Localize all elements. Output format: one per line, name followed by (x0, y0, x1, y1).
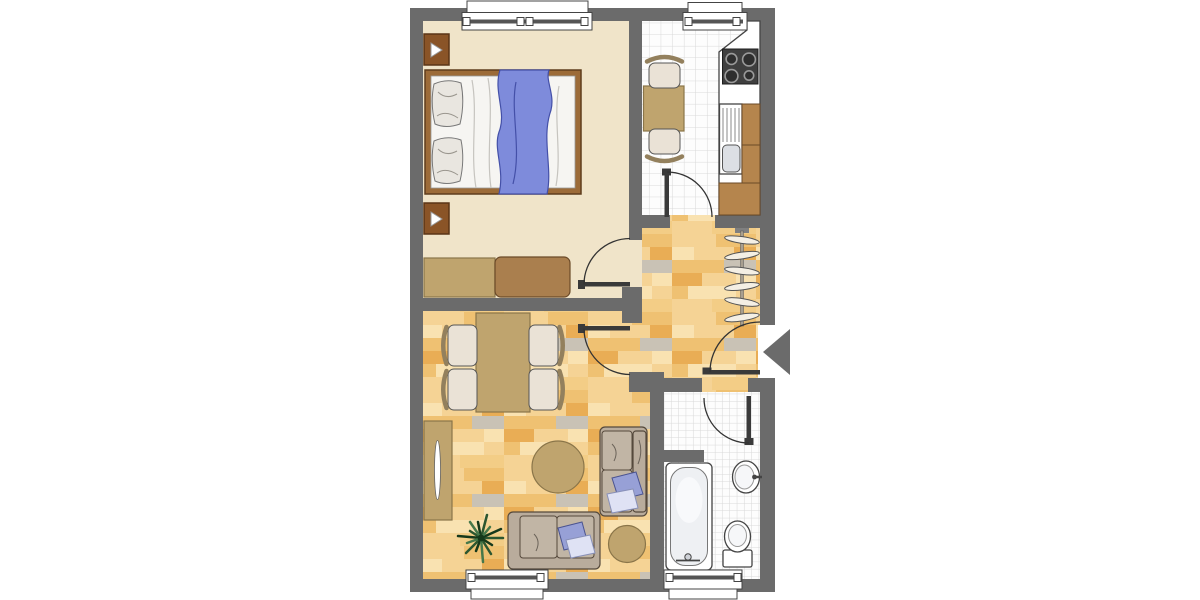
bedroom-window (462, 1, 592, 30)
bathroom-doorway (702, 378, 748, 392)
bathroom-window (664, 570, 742, 599)
kitchen-window (683, 3, 747, 31)
door-handle (745, 438, 754, 445)
kitchen-table (644, 86, 685, 131)
window-handle (685, 18, 692, 26)
window-handle (581, 18, 588, 26)
loveseat-cushion (602, 431, 632, 470)
window-handle (463, 18, 470, 26)
door-leaf (584, 326, 630, 331)
pillow (432, 138, 463, 184)
bedroom-doorway (629, 240, 642, 287)
bathtub-ledge (650, 450, 704, 462)
sofa-symbol (508, 512, 600, 569)
kitchen-cabinet (742, 145, 760, 183)
toilet-symbol (723, 521, 752, 567)
dining-chair (529, 325, 563, 366)
dresser (424, 258, 495, 297)
chair-seat (649, 63, 680, 88)
chair-seat (448, 325, 477, 366)
dining-chair (529, 369, 563, 410)
sideboard-handle (435, 441, 441, 500)
page (0, 0, 1200, 600)
window-handle (666, 574, 673, 582)
bathtub-highlight (676, 477, 703, 523)
window-sill (688, 3, 742, 14)
basin-inner (735, 465, 754, 489)
ottoman (609, 526, 646, 563)
door-leaf (584, 282, 630, 287)
dining-chair (443, 369, 477, 410)
door-leaf (747, 396, 752, 441)
plant-center (478, 535, 485, 542)
door-leaf (708, 370, 760, 375)
burner-icon (744, 71, 753, 80)
double-bed-symbol (425, 70, 581, 194)
sink-symbol (720, 104, 743, 174)
chair-seat (529, 325, 558, 366)
pillow (432, 81, 463, 127)
window-glass-bar (668, 576, 738, 580)
blanket (497, 70, 552, 194)
round-rug (532, 441, 584, 493)
door-post (622, 287, 642, 323)
window-handle (517, 18, 524, 26)
window-handle (468, 574, 475, 582)
living-room-window (466, 570, 548, 599)
chair-seat (448, 369, 477, 410)
loveseat-symbol (600, 427, 647, 516)
window-handle (733, 18, 740, 26)
burner-icon (726, 54, 737, 65)
toilet-bowl-inner (729, 525, 747, 547)
burner-icon (725, 70, 738, 83)
throw-pillow-light (607, 489, 638, 513)
kitchen-doorway (670, 215, 715, 228)
low-chest (495, 257, 570, 297)
window-sill (471, 589, 543, 599)
wall-arrow-marker (424, 34, 449, 65)
stove-symbol (723, 49, 759, 84)
drain-icon (685, 554, 691, 560)
bathtub-symbol (666, 463, 712, 570)
window-handle (526, 18, 533, 26)
tap-knob (752, 475, 757, 480)
dining-table (476, 313, 530, 412)
window-sill (669, 589, 737, 599)
sideboard (424, 421, 452, 520)
floor-plan (0, 0, 1200, 600)
rack-rail (741, 231, 744, 326)
wall-arrow-marker (424, 203, 449, 234)
door-leaf (665, 172, 670, 217)
corner-wall-block (629, 372, 664, 392)
chair-seat (649, 129, 680, 154)
chair-seat (529, 369, 558, 410)
bedroom (424, 34, 581, 297)
sink-basin (723, 145, 741, 172)
kitchen-cabinet (742, 104, 760, 145)
sofa-cushion (520, 516, 557, 558)
window-glass-bar (470, 576, 544, 580)
burner-icon (743, 53, 756, 66)
window-handle (734, 574, 741, 582)
window-handle (537, 574, 544, 582)
kitchen-cabinet (719, 183, 760, 215)
dining-chair (443, 325, 477, 366)
